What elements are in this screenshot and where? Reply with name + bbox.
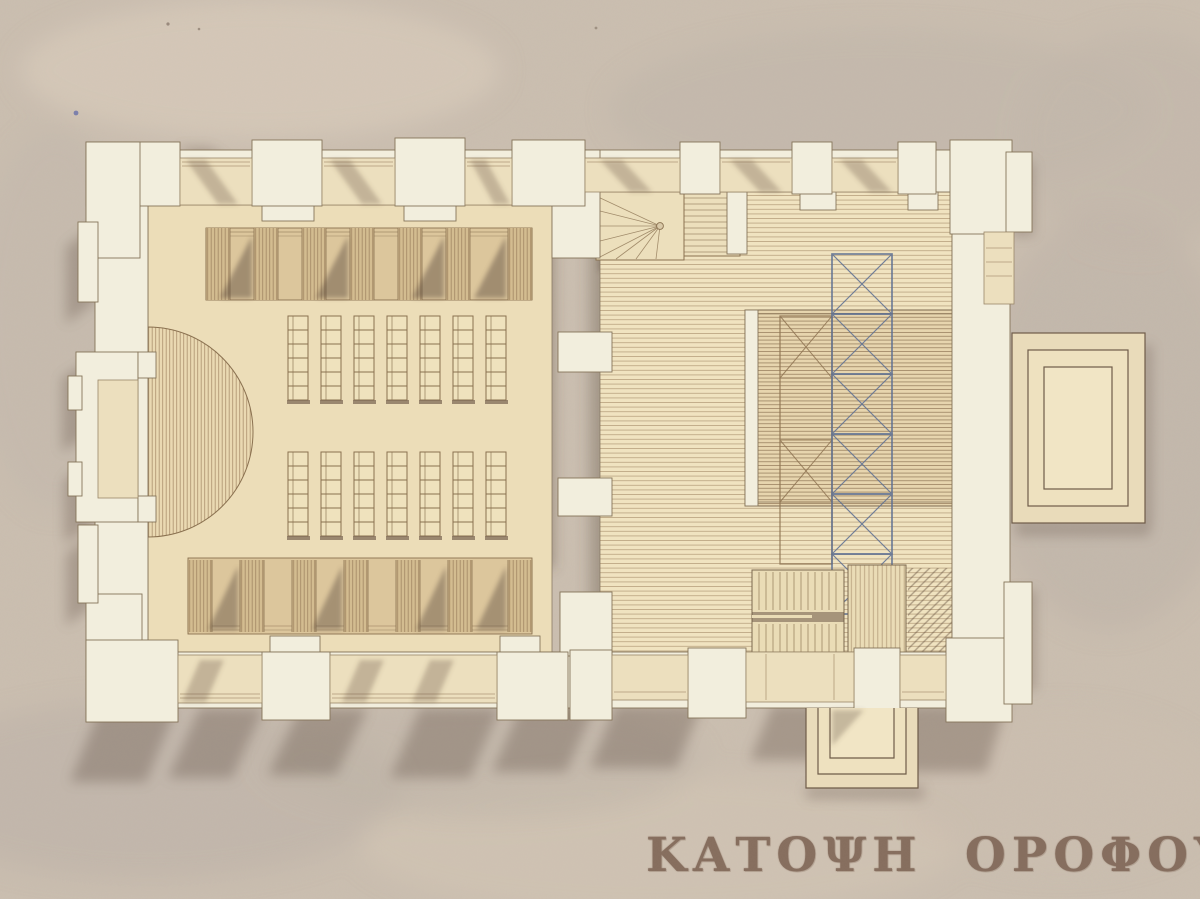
winder-staircase [596,192,684,260]
south-entrance-steps [806,708,918,788]
partition-pier-lower [558,478,612,516]
scanned-floor-plan-drawing: ΚΑΤΟΨΗ ΟΡΟΦΟΥ [0,0,1200,899]
east-entrance-steps [1012,333,1145,523]
east-window-bay [984,232,1014,304]
north-bench-row [206,228,532,300]
partition-pier-upper [558,332,612,372]
south-bench-row [188,558,532,634]
stair-pier [727,192,747,254]
west-door-recess [98,380,138,498]
side-steps-ramp [848,565,906,662]
corner-shadow-hatch [908,568,952,662]
stage-edge-wall [745,310,758,506]
floor-plan-canvas [0,0,1200,899]
partition-wall-south [560,592,612,656]
south-door-opening [746,652,854,702]
drawing-title: ΚΑΤΟΨΗ ΟΡΟΦΟΥ [646,828,1166,883]
dogleg-staircase [752,570,844,662]
